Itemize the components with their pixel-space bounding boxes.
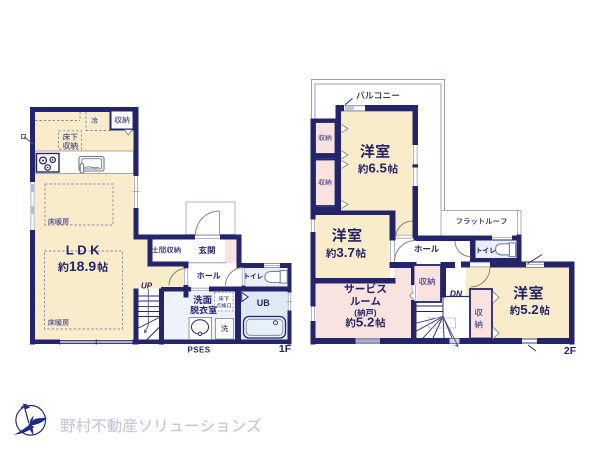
svg-text:5.2: 5.2	[520, 302, 539, 317]
svg-text:UB: UB	[257, 298, 270, 308]
svg-text:3.7: 3.7	[336, 245, 355, 260]
svg-text:PSES: PSES	[188, 346, 211, 355]
svg-text:6.5: 6.5	[368, 161, 387, 176]
svg-text:DN: DN	[450, 288, 463, 298]
svg-text:2F: 2F	[564, 345, 577, 357]
svg-text:UP: UP	[141, 281, 153, 290]
svg-text:18.9: 18.9	[69, 258, 96, 274]
svg-text:1F: 1F	[279, 343, 292, 355]
svg-text:5.2: 5.2	[356, 315, 375, 330]
svg-text:LDK: LDK	[66, 242, 103, 257]
